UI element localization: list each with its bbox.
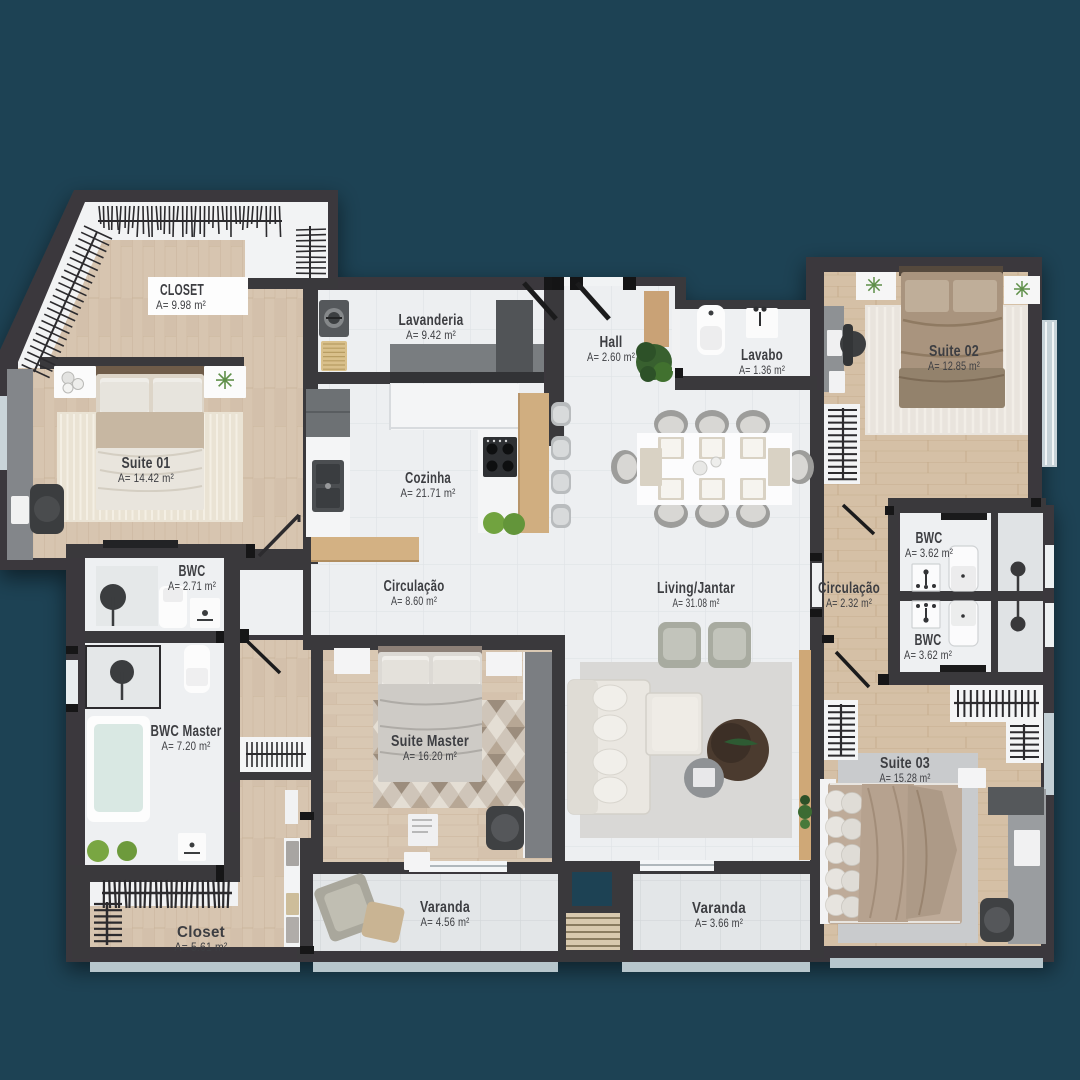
svg-text:BWC Master: BWC Master (151, 723, 222, 740)
svg-text:A= 31.08 m²: A= 31.08 m² (673, 596, 720, 610)
svg-text:A= 9.42 m²: A= 9.42 m² (406, 328, 456, 342)
svg-text:CLOSET: CLOSET (160, 282, 204, 299)
svg-text:A= 3.66 m²: A= 3.66 m² (695, 916, 743, 930)
svg-text:Circulação: Circulação (818, 580, 880, 597)
svg-text:Hall: Hall (600, 334, 623, 351)
svg-text:Living/Jantar: Living/Jantar (657, 580, 735, 597)
svg-text:Suite 03: Suite 03 (880, 755, 930, 772)
svg-text:A= 14.42 m²: A= 14.42 m² (118, 471, 174, 485)
svg-text:BWC: BWC (916, 530, 943, 547)
svg-text:Cozinha: Cozinha (405, 470, 451, 487)
svg-text:Suite Master: Suite Master (391, 733, 469, 750)
svg-text:Closet: Closet (177, 924, 225, 941)
svg-text:A= 12.85 m²: A= 12.85 m² (928, 359, 980, 373)
svg-text:Varanda: Varanda (420, 899, 470, 916)
svg-text:A= 2.32 m²: A= 2.32 m² (826, 596, 872, 610)
svg-text:A= 2.60 m²: A= 2.60 m² (587, 350, 635, 364)
svg-text:A= 15.28 m²: A= 15.28 m² (880, 771, 931, 785)
svg-text:A= 7.20 m²: A= 7.20 m² (162, 739, 211, 753)
svg-text:Suite 02: Suite 02 (929, 343, 979, 360)
svg-text:Lavabo: Lavabo (741, 347, 783, 364)
svg-text:A= 4.56 m²: A= 4.56 m² (421, 915, 470, 929)
svg-text:A= 3.62 m²: A= 3.62 m² (904, 648, 952, 662)
svg-text:A= 1.36 m²: A= 1.36 m² (739, 363, 785, 377)
svg-text:Varanda: Varanda (692, 900, 746, 917)
svg-text:A= 8.60 m²: A= 8.60 m² (391, 594, 437, 608)
svg-text:Lavanderia: Lavanderia (399, 312, 464, 329)
svg-text:A= 21.71 m²: A= 21.71 m² (401, 486, 456, 500)
svg-text:Suite 01: Suite 01 (122, 455, 171, 472)
svg-text:Circulação: Circulação (384, 578, 445, 595)
svg-text:BWC: BWC (179, 563, 206, 580)
svg-text:A= 5.61 m²: A= 5.61 m² (175, 940, 228, 954)
svg-text:BWC: BWC (915, 632, 942, 649)
svg-text:A= 3.62 m²: A= 3.62 m² (905, 546, 953, 560)
svg-text:A= 2.71 m²: A= 2.71 m² (168, 579, 216, 593)
svg-text:A= 9.98 m²: A= 9.98 m² (156, 298, 206, 312)
svg-text:A= 16.20 m²: A= 16.20 m² (403, 749, 457, 763)
